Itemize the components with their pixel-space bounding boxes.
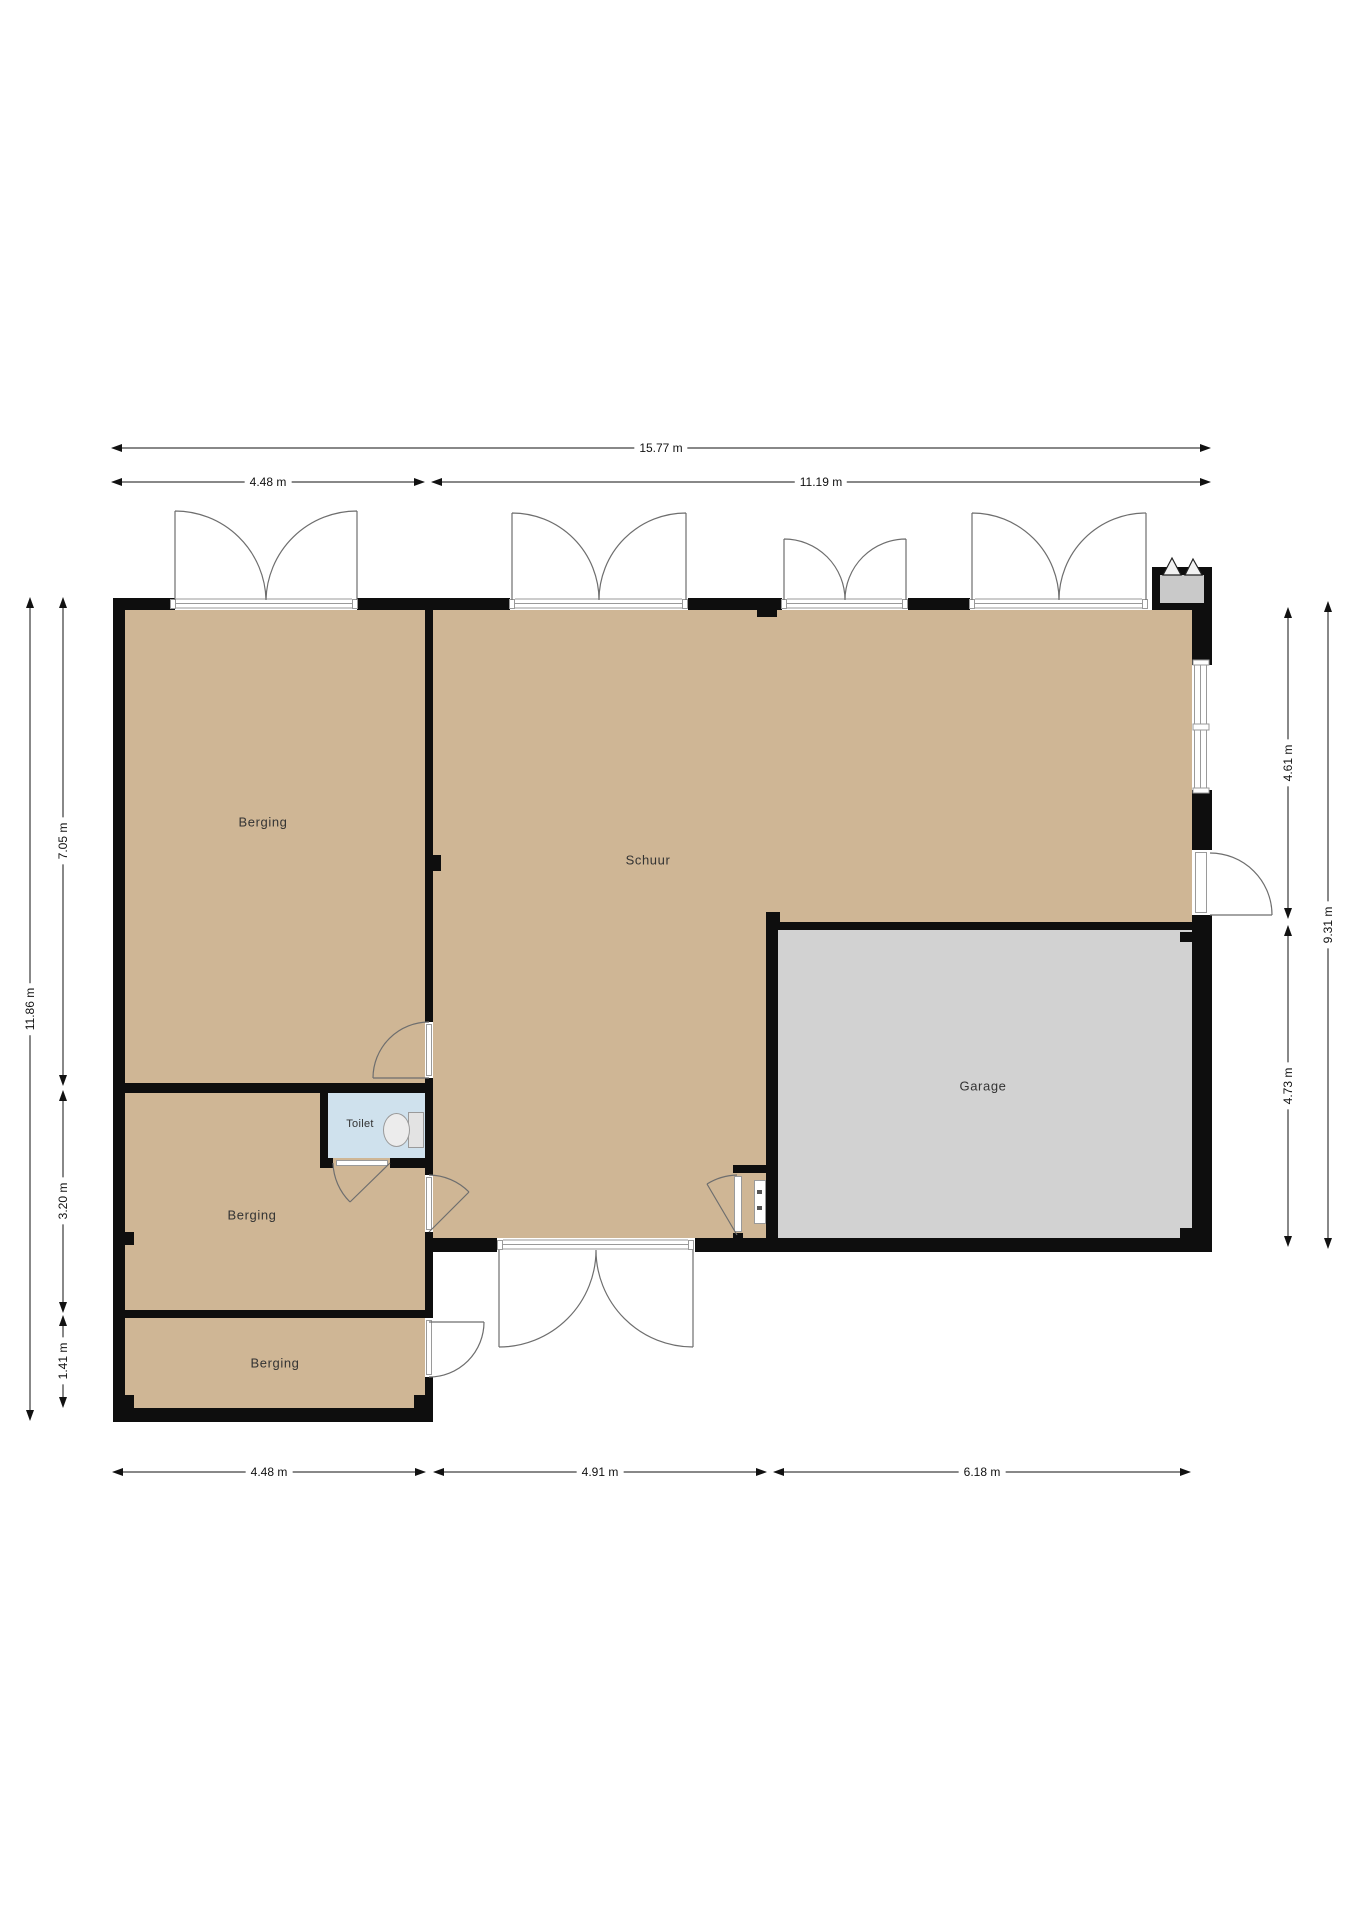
door-frame: [1142, 599, 1148, 609]
pilaster: [125, 1232, 134, 1245]
toilet-bottom-wall: [320, 1158, 333, 1168]
dimension-label-left-mid: 3.20 m: [56, 1178, 70, 1225]
dimension-label-top-right: 11.19 m: [795, 475, 847, 489]
room-label-berging-top: Berging: [238, 815, 287, 830]
pilaster: [757, 608, 777, 617]
door-frame: [688, 1240, 694, 1250]
niche-bottom-stub: [733, 1233, 743, 1240]
door-frame: [509, 599, 515, 609]
door-frame: [969, 599, 975, 609]
dimension-label-right-total: 9.31 m: [1321, 902, 1335, 949]
dimension-label-left-total: 11.86 m: [23, 983, 37, 1035]
dimension-label-top-left: 4.48 m: [245, 475, 292, 489]
dimension-label-right-top: 4.61 m: [1281, 740, 1295, 787]
toilet-bottom-wall: [390, 1158, 433, 1168]
bottom-wall-berging: [113, 1408, 433, 1422]
interior-wall-vertical: [425, 1232, 433, 1318]
garage-top-wall: [766, 922, 1212, 930]
door-frame: [682, 599, 688, 609]
interior-wall-vertical: [425, 1377, 433, 1408]
door-leaf-strip: [426, 1024, 432, 1076]
wall-berging-top-mid: [125, 1083, 433, 1093]
dimension-label-top-total: 15.77 m: [634, 441, 687, 455]
dimension-label-bottom-left: 4.48 m: [246, 1465, 293, 1479]
right-wall-segment: [1192, 790, 1212, 850]
pilaster: [414, 1395, 425, 1408]
pilaster: [433, 855, 441, 871]
room-label-garage: Garage: [960, 1079, 1007, 1094]
door-leaf-strip: [1195, 852, 1207, 913]
garage-top-corner-nub: [766, 912, 780, 922]
room-berging-top-floor: [125, 610, 425, 1083]
top-wall-segment: [357, 598, 510, 610]
door-leaf-strip: [336, 1160, 388, 1166]
door-frame: [902, 599, 908, 609]
interior-wall-vertical: [425, 610, 433, 1022]
meter-cabinet-mark: [757, 1206, 762, 1210]
door-leaf-strip: [734, 1176, 742, 1232]
dimension-label-bottom-right: 6.18 m: [959, 1465, 1006, 1479]
floor-plan: Berging Schuur Garage Toilet Berging Ber…: [0, 0, 1358, 1920]
pilaster: [1180, 1228, 1192, 1241]
niche-top-wall: [733, 1165, 778, 1173]
toilet-left-wall: [320, 1093, 328, 1168]
toilet-bowl: [383, 1113, 410, 1147]
dimension-label-bottom-mid: 4.91 m: [577, 1465, 624, 1479]
room-label-schuur: Schuur: [626, 853, 671, 868]
meter-cabinet-mark: [757, 1190, 762, 1194]
garage-bottom-wall: [695, 1238, 1212, 1252]
dimension-label-left-bottom: 1.41 m: [56, 1338, 70, 1385]
door-frame: [352, 599, 358, 609]
chimney-inner: [1160, 575, 1204, 603]
room-label-berging-bottom: Berging: [250, 1356, 299, 1371]
schuur-bottom-wall-left: [425, 1238, 497, 1252]
room-label-berging-mid: Berging: [227, 1208, 276, 1223]
meter-cabinet: [754, 1180, 766, 1224]
door-frame: [170, 599, 176, 609]
door-leaf-strip: [426, 1320, 432, 1375]
garage-left-wall: [766, 930, 778, 1238]
pilaster: [125, 1395, 134, 1408]
door-frame: [781, 599, 787, 609]
room-label-toilet: Toilet: [346, 1118, 373, 1130]
wall-berging-mid-bottom: [125, 1310, 425, 1318]
top-wall-segment: [908, 598, 970, 610]
right-wall-segment: [1192, 598, 1212, 665]
door-leaf-strip: [426, 1177, 432, 1230]
window: [1193, 660, 1209, 793]
toilet-tank: [408, 1112, 424, 1148]
door-frame: [497, 1240, 503, 1250]
pilaster: [1180, 932, 1192, 942]
garage-right-wall: [1192, 930, 1212, 1252]
left-wall: [113, 598, 125, 1422]
dimension-label-right-bottom: 4.73 m: [1281, 1063, 1295, 1110]
dimension-label-left-top: 7.05 m: [56, 818, 70, 865]
